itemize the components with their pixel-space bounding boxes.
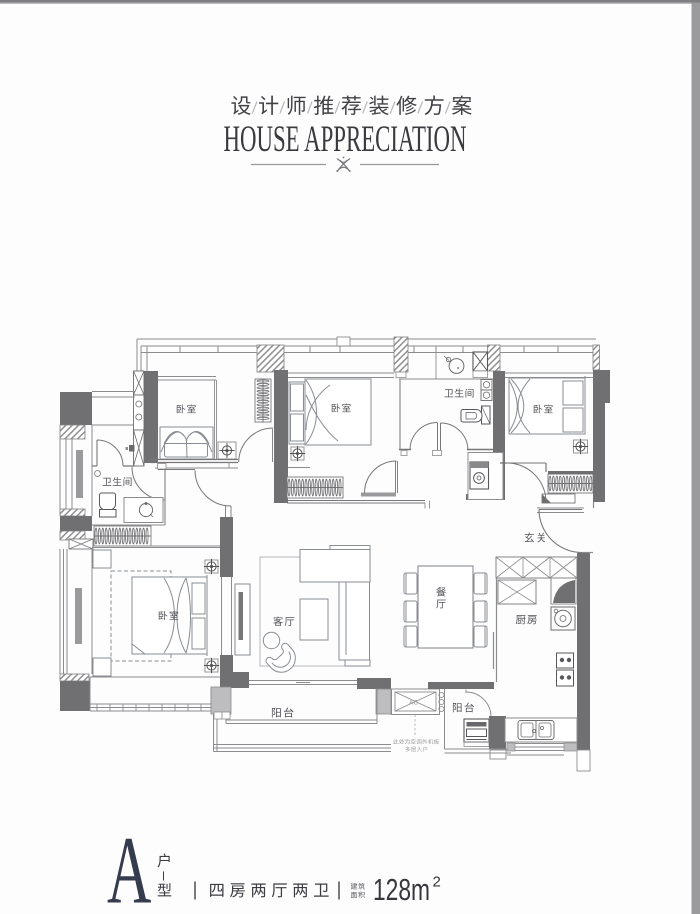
svg-text:2: 2 bbox=[433, 874, 441, 891]
svg-text:128m: 128m bbox=[373, 872, 430, 907]
svg-text:HOUSE APPRECIATION: HOUSE APPRECIATION bbox=[224, 119, 467, 160]
svg-text:A: A bbox=[107, 818, 151, 914]
svg-text:AC: AC bbox=[409, 700, 418, 707]
